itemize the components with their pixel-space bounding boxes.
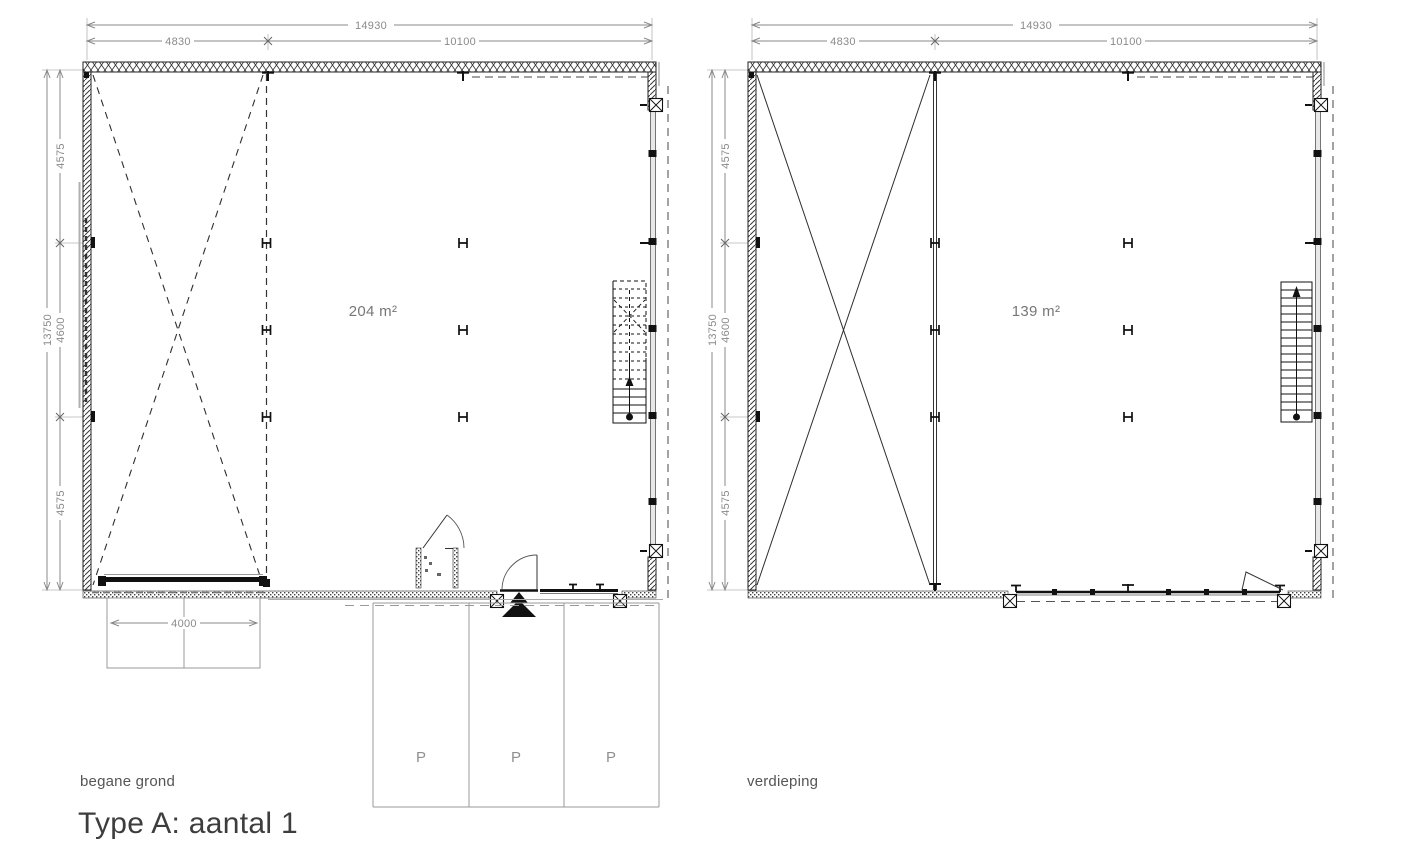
glass-facade-bottom-upper (1004, 572, 1291, 608)
floorplan-sheet: 14930 4830 10100 13750 4575 4600 4575 (0, 0, 1404, 851)
entrance-zone (491, 555, 627, 617)
dim-top-ground: 14930 4830 10100 (87, 19, 652, 48)
door-swing-icon (502, 555, 537, 590)
parking-stall-label: P (416, 749, 426, 766)
door-swing-icon (1242, 572, 1283, 590)
steel-column-icon (1315, 99, 1328, 112)
dim-width-total-upper: 14930 (1020, 20, 1052, 32)
mezzanine-edge-ground (93, 74, 270, 587)
dim-height-top-ground: 4575 (55, 143, 67, 169)
steel-column-icon (650, 545, 663, 558)
dim-height-bottom-upper: 4575 (720, 490, 732, 516)
dim-left-ground: 13750 4575 4600 4575 (41, 70, 67, 590)
canopy-column-icon (1278, 595, 1291, 608)
stairs-icon-upper (1281, 282, 1312, 422)
walls-ground (80, 62, 660, 598)
dim-top-upper: 14930 4830 10100 (752, 19, 1317, 48)
cross-brace-dashed (93, 75, 263, 585)
witness-lines-ground (42, 18, 652, 590)
dim-height-top-upper: 4575 (720, 143, 732, 169)
steel-column-icon (1315, 545, 1328, 558)
sectional-door (92, 575, 268, 593)
dim-height-mid-ground: 4600 (55, 317, 67, 343)
loading-bay: 4000 (107, 598, 260, 668)
dim-height-mid-upper: 4600 (720, 317, 732, 343)
ground-floor-plan: 14930 4830 10100 13750 4575 4600 4575 (41, 18, 668, 807)
door-swing-icon (423, 515, 464, 548)
vide-edge-upper (757, 72, 941, 591)
dim-height-total-upper: 13750 (707, 314, 719, 346)
columns-upper (929, 71, 1134, 422)
area-label-upper: 139 m² (1012, 303, 1061, 320)
columns-ground (262, 71, 469, 422)
dim-height-total-ground: 13750 (42, 314, 54, 346)
dim-width-left-ground: 4830 (165, 36, 191, 48)
glass-facade-right-upper (1305, 86, 1333, 601)
dim-width-total-ground: 14930 (355, 20, 387, 32)
drawing-canvas: 14930 4830 10100 13750 4575 4600 4575 (0, 0, 1404, 851)
dim-height-bottom-ground: 4575 (55, 490, 67, 516)
stairs-icon-ground (613, 281, 646, 423)
toilet-room (416, 515, 464, 588)
dim-door-width: 4000 (171, 618, 197, 630)
glass-facade-right-ground (640, 86, 668, 601)
plan-label-upper: verdieping (747, 773, 818, 790)
parking-stall-label: P (511, 749, 521, 766)
parking-stall-label: P (606, 749, 616, 766)
plan-label-ground: begane grond (80, 773, 175, 790)
entrance-arrow-icon (502, 592, 536, 617)
steel-column-icon (650, 99, 663, 112)
dim-width-right-ground: 10100 (444, 36, 476, 48)
upper-floor-plan: 14930 4830 10100 13750 4575 4600 4575 (706, 18, 1333, 790)
dim-width-left-upper: 4830 (830, 36, 856, 48)
canopy-column-icon (1004, 595, 1017, 608)
walls-upper (748, 62, 1324, 598)
sheet-title: Type A: aantal 1 (78, 807, 298, 840)
dim-width-right-upper: 10100 (1110, 36, 1142, 48)
cross-brace-solid (757, 75, 930, 585)
parking-area: P P P (268, 600, 663, 808)
area-label-ground: 204 m² (349, 303, 398, 320)
dim-left-upper: 13750 4575 4600 4575 (706, 70, 732, 590)
